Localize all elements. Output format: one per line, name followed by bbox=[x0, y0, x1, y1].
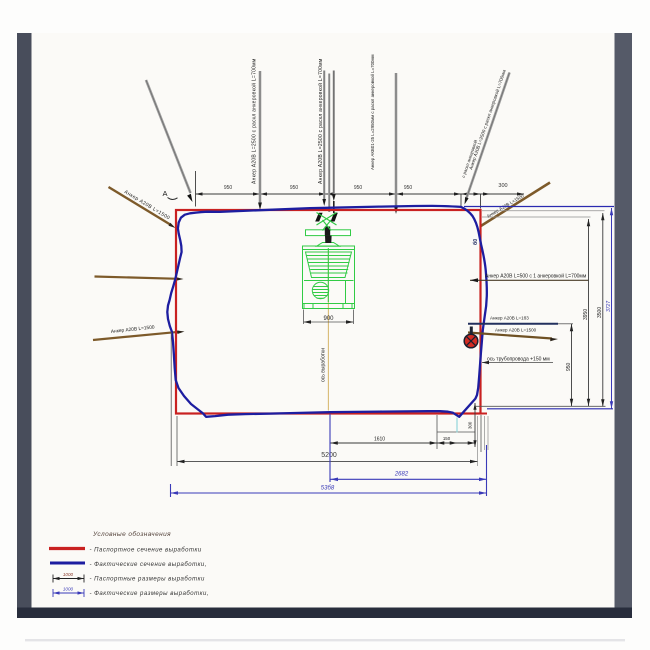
svg-text:Условные обозначения: Условные обозначения bbox=[92, 530, 171, 538]
svg-text:950: 950 bbox=[566, 362, 572, 371]
svg-text:1610: 1610 bbox=[374, 437, 385, 443]
svg-text:950: 950 bbox=[404, 185, 413, 191]
svg-text:Анкер А20В L=1500: Анкер А20В L=1500 bbox=[495, 328, 537, 333]
svg-text:1000: 1000 bbox=[63, 572, 74, 577]
svg-text:Анкер А20В L=1б3: Анкер А20В L=1б3 bbox=[490, 316, 529, 321]
svg-text:Анкер А20В L=2500 с раскл анке: Анкер А20В L=2500 с раскл анкеровкой L=7… bbox=[317, 58, 324, 184]
svg-text:950: 950 bbox=[354, 185, 363, 191]
svg-text:- Фактические размеры выработк: - Фактические размеры выработки, bbox=[90, 591, 209, 597]
svg-text:3500: 3500 bbox=[597, 307, 603, 318]
svg-text:3727: 3727 bbox=[606, 301, 612, 312]
svg-text:ось выработки: ось выработки bbox=[321, 348, 327, 382]
svg-text:- Фактические сечение выработк: - Фактические сечение выработки, bbox=[90, 562, 207, 568]
svg-text:Анкер А20В L=500 с 1 анкеровко: Анкер А20В L=500 с 1 анкеровкой L=700мм bbox=[485, 273, 587, 280]
svg-text:150: 150 bbox=[443, 436, 451, 441]
svg-text:1000: 1000 bbox=[63, 587, 74, 592]
svg-text:- Паспортное сечение выработки: - Паспортное сечение выработки bbox=[90, 548, 202, 554]
svg-text:2682: 2682 bbox=[394, 472, 409, 478]
svg-text:б0: б0 bbox=[472, 239, 479, 245]
svg-text:- Паспортные размеры выработки: - Паспортные размеры выработки bbox=[90, 577, 205, 583]
svg-text:300: 300 bbox=[468, 421, 473, 429]
svg-text:53б8: 53б8 bbox=[321, 486, 335, 492]
svg-text:3950: 3950 bbox=[583, 309, 589, 320]
svg-text:900: 900 bbox=[323, 316, 334, 322]
svg-text:А: А bbox=[163, 189, 168, 198]
svg-text:Анкер А20В L=2500 с раскл анке: Анкер А20В L=2500 с раскл анкеровкой L=7… bbox=[251, 58, 258, 184]
svg-text:ось трубопровода +150 мм: ось трубопровода +150 мм bbox=[487, 357, 550, 363]
svg-text:300: 300 bbox=[498, 183, 507, 189]
svg-text:950: 950 bbox=[290, 185, 299, 191]
svg-text:5200: 5200 bbox=[321, 452, 337, 459]
svg-text:950: 950 bbox=[224, 185, 233, 191]
svg-text:Анкер АКВ01-25 L=2950мм с раск: Анкер АКВ01-25 L=2950мм с раскл анкеровк… bbox=[370, 54, 375, 170]
